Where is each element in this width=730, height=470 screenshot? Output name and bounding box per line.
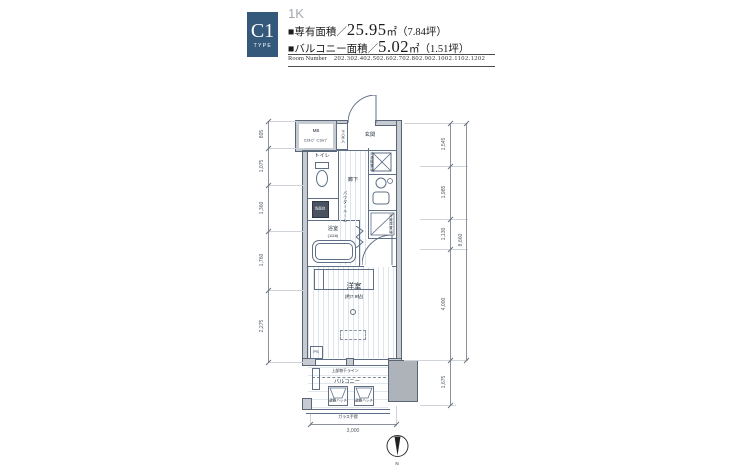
dimension-line-right-total (466, 123, 467, 360)
upper-cabinet-dashed-box (340, 330, 366, 340)
meter-box-label: MB (313, 128, 320, 133)
bed-pillow-line (323, 269, 324, 290)
laundry-line-dashed (312, 377, 386, 378)
dim-right-2: 1,985 (441, 186, 446, 199)
western-room-label: 洋室 (347, 283, 362, 292)
washer-pan-icon (372, 152, 392, 172)
extension-line (268, 231, 304, 232)
dim-right-3: 1,130 (441, 228, 446, 241)
ceiling-light-icon (350, 309, 356, 315)
dim-left-1: 805 (259, 130, 264, 139)
entrance-label: 玄関 (365, 132, 375, 138)
balcony-label: バルコニー (334, 379, 360, 385)
toilet-label: トイレ (314, 153, 330, 159)
extension-line (268, 148, 304, 149)
evacuation-hatch-label: 避難ハッチ (355, 399, 373, 403)
extension-line (404, 123, 468, 124)
entrance-door-arc-icon (348, 95, 377, 124)
glass-railing-label: ガラス手摺 (338, 415, 357, 419)
meter-box (296, 121, 336, 151)
refrigerator-label: 冷蔵庫置場 (388, 214, 392, 235)
dimension-line-bottom (310, 424, 397, 425)
dim-left-5: 2,275 (259, 320, 264, 333)
compass-north-icon (384, 434, 411, 461)
extension-line (268, 362, 304, 363)
type-word: TYPE (253, 43, 271, 48)
extension-line (404, 360, 468, 361)
dim-bottom-width: 3,000 (347, 428, 360, 433)
wall-right (396, 120, 402, 366)
dim-tick (394, 422, 400, 428)
toilet-tank (315, 162, 329, 169)
western-room-size-label: (約7.9帖) (345, 294, 363, 299)
dim-right-4: 4,000 (441, 298, 446, 311)
type-code: C1 (251, 21, 274, 41)
shoe-box-label: 下足入 (340, 130, 344, 144)
header-divider-bottom (288, 66, 495, 67)
dim-right-total: 8,660 (458, 234, 463, 247)
type-badge: C1 TYPE (247, 12, 278, 57)
washer-label: 洗濯機置場 (369, 152, 373, 173)
window-left-icon (316, 359, 346, 366)
extension-line (420, 249, 468, 250)
kitchen-icon (369, 175, 396, 209)
dim-balcony-depth: 1,675 (441, 376, 446, 389)
bathtub-inner (315, 243, 353, 260)
room-number-label: Room Number (288, 55, 327, 62)
dim-tick (464, 358, 470, 364)
compass-north-label: N (395, 461, 398, 466)
dim-right-1: 1,545 (441, 138, 446, 151)
room-number-line: Room Number202.302.402.502.602.702.802.9… (288, 55, 485, 62)
pipe-space-label: PS (313, 350, 318, 354)
adjacent-structure-block (388, 360, 418, 402)
bathroom-size-label: (1116) (328, 234, 339, 238)
dim-left-3: 1,360 (259, 202, 264, 215)
vanity-label: 洗面台 (315, 207, 326, 211)
partition (338, 150, 339, 220)
dimension-line-left (268, 121, 269, 362)
dim-left-4: 1,760 (259, 254, 264, 267)
extension-line (420, 166, 468, 167)
room-door-arc-icon (362, 235, 393, 266)
meter-box-type-label: C2ﾀｲﾌﾟ C1ﾀｲﾌﾟ (304, 139, 328, 143)
partition (308, 198, 338, 199)
extension-line (268, 185, 304, 186)
extension-line (268, 290, 304, 291)
room-number-values: 202.302.402.502.602.702.802.902.1002.110… (334, 55, 485, 62)
window-right-icon (354, 359, 388, 366)
hallway-label: 廊下 (348, 177, 358, 183)
laundry-line-label: 上部物干ライン (331, 369, 358, 373)
balcony-left-pillar (302, 398, 312, 410)
balcony-side-box (312, 368, 320, 390)
wall-bottom-left (302, 358, 316, 366)
extension-line (268, 121, 298, 122)
floorplan-page: C1 TYPE 1K ■専有面積／25.95㎡（7.84坪） ■バルコニー面積／… (0, 0, 730, 470)
partition (368, 210, 396, 211)
extension-line (420, 219, 468, 220)
toilet-bowl-icon (316, 170, 328, 187)
evacuation-hatch-label: 避難ハッチ (329, 399, 347, 403)
wall-bottom-center (346, 358, 354, 366)
powder-room-label: パウダールーム (342, 191, 346, 223)
layout-type-label: 1K (288, 6, 304, 21)
bathroom-label: 浴室 (328, 226, 338, 232)
dim-left-2: 1,075 (259, 160, 264, 173)
glass-railing (306, 409, 390, 414)
